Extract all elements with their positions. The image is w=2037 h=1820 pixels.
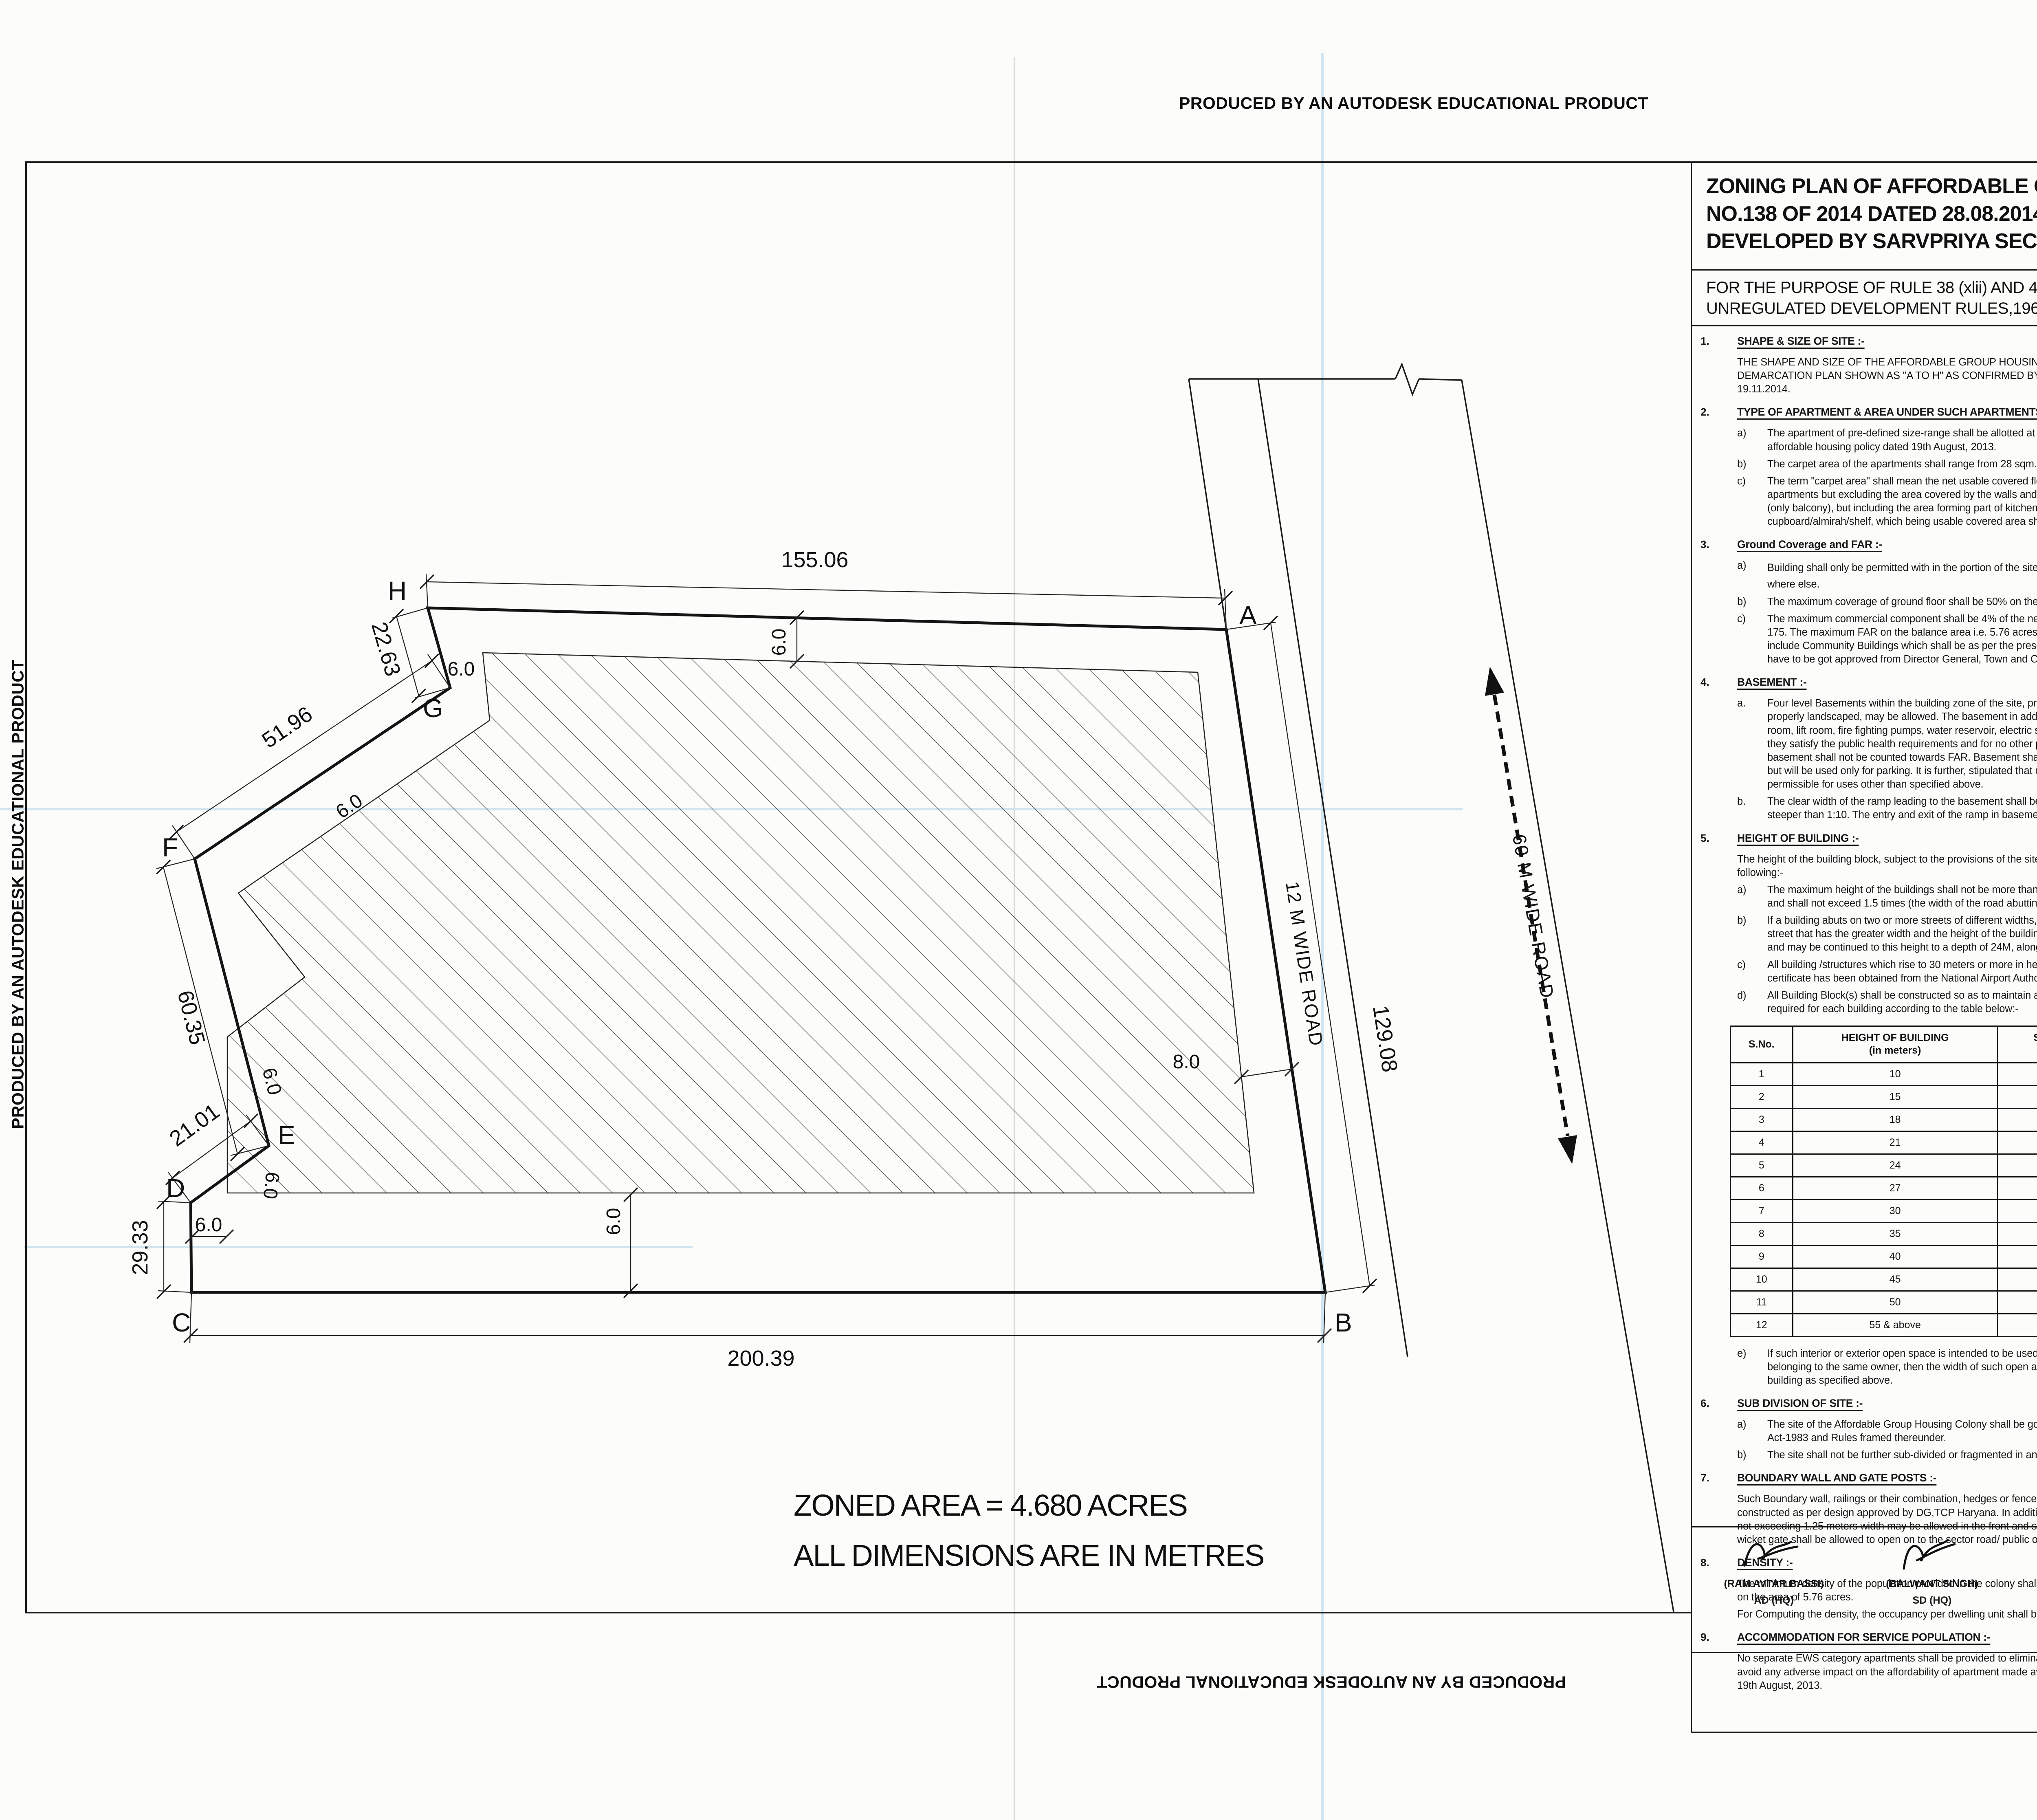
signature-block: (BALWANT SINGH)SD (HQ) bbox=[1853, 1531, 2011, 1649]
vertex-G: G bbox=[423, 693, 443, 723]
dim-label-bottom: 200.39 bbox=[727, 1346, 794, 1371]
table-cell: 10 bbox=[1793, 1063, 1997, 1085]
table-cell: 50 bbox=[1793, 1291, 1997, 1314]
table-row: 1255 & above16 bbox=[1731, 1314, 2037, 1336]
table-cell: 9 bbox=[1731, 1245, 1793, 1268]
section-number: 4. bbox=[1700, 676, 1709, 689]
table-header: SET BACK / OPEN SPACE TO BE LEFT AROUND … bbox=[1997, 1026, 2037, 1063]
clause: b.The clear width of the ramp leading to… bbox=[1737, 795, 2037, 822]
section: 6.SUB DIVISION OF SITE :-a)The site of t… bbox=[1700, 1397, 2037, 1462]
clause: a)The site of the Affordable Group Housi… bbox=[1737, 1418, 2037, 1445]
clause-label: d) bbox=[1737, 989, 1746, 1002]
clause-label: b. bbox=[1737, 795, 1746, 808]
clause-label: c) bbox=[1737, 958, 1746, 972]
section: 5.HEIGHT OF BUILDING :-The height of the… bbox=[1700, 832, 2037, 1387]
clause: c)The maximum commercial component shall… bbox=[1737, 612, 2037, 667]
dimensions-note: ALL DIMENSIONS ARE IN METRES bbox=[794, 1538, 1264, 1573]
clause: b)The carpet area of the apartments shal… bbox=[1737, 458, 2037, 471]
table-row: 115014 bbox=[1731, 1291, 2037, 1314]
clause: e)If such interior or exterior open spac… bbox=[1737, 1347, 2037, 1387]
section-number: 5. bbox=[1700, 832, 1709, 845]
road-lines bbox=[1189, 364, 1674, 1612]
table-cell: 11 bbox=[1997, 1222, 2037, 1245]
vertex-D: D bbox=[166, 1173, 185, 1203]
table-row: 73010 bbox=[1731, 1199, 2037, 1222]
clause-text: The height of the building block, subjec… bbox=[1737, 854, 2037, 878]
section: 4.BASEMENT :-a.Four level Basements with… bbox=[1700, 676, 2037, 822]
clause: a)Building shall only be permitted with … bbox=[1737, 559, 2037, 591]
table-cell: 7 bbox=[1997, 1131, 2037, 1154]
table-cell: 6 bbox=[1997, 1108, 2037, 1131]
section-heading: SHAPE & SIZE OF SITE :- bbox=[1737, 335, 2037, 348]
table-row: 94012 bbox=[1731, 1245, 2037, 1268]
dim-label-dc: 29.33 bbox=[128, 1220, 152, 1275]
table-cell: 8 bbox=[1731, 1222, 1793, 1245]
table-cell: 21 bbox=[1793, 1131, 1997, 1154]
vertex-F: F bbox=[162, 833, 178, 862]
clause-text: No separate EWS category apartments shal… bbox=[1737, 1653, 2037, 1691]
clause-label: a) bbox=[1737, 559, 1746, 572]
section-heading: BOUNDARY WALL AND GATE POSTS :- bbox=[1737, 1472, 2037, 1484]
signatory-role: SD (HQ) bbox=[1853, 1595, 2011, 1607]
clause: a.Four level Basements within the buildi… bbox=[1737, 697, 2037, 791]
table-cell: 10 bbox=[1997, 1199, 2037, 1222]
clause-label: e) bbox=[1737, 1347, 1746, 1360]
section-number: 3. bbox=[1700, 538, 1709, 551]
section-number: 6. bbox=[1700, 1397, 1709, 1410]
clause-text: The clear width of the ramp leading to t… bbox=[1767, 796, 2037, 821]
purpose-statement: FOR THE PURPOSE OF RULE 38 (xlii) AND 48… bbox=[1706, 277, 2037, 319]
clause-text: THE SHAPE AND SIZE OF THE AFFORDABLE GRO… bbox=[1737, 357, 2037, 395]
clause-label: c) bbox=[1737, 475, 1746, 488]
table-cell: 12 bbox=[1731, 1314, 1793, 1336]
clause: d)All Building Block(s) shall be constru… bbox=[1737, 989, 2037, 1016]
road-60m-label: 60 M WIDE ROAD bbox=[1509, 832, 1558, 1000]
table-cell: 45 bbox=[1793, 1268, 1997, 1291]
table-cell: 10 bbox=[1731, 1268, 1793, 1291]
table-cell: 35 bbox=[1793, 1222, 1997, 1245]
section-heading: SUB DIVISION OF SITE :- bbox=[1737, 1397, 2037, 1410]
section: 1.SHAPE & SIZE OF SITE :-THE SHAPE AND S… bbox=[1700, 335, 2037, 396]
section-heading: BASEMENT :- bbox=[1737, 676, 2037, 689]
clause: b)If a building abuts on two or more str… bbox=[1737, 914, 2037, 954]
clause-label: b) bbox=[1737, 458, 1746, 471]
vertex-H: H bbox=[388, 576, 407, 605]
clause-text: The site of the Affordable Group Housing… bbox=[1767, 1419, 2037, 1444]
spec-column-left: 1.SHAPE & SIZE OF SITE :-THE SHAPE AND S… bbox=[1700, 335, 2037, 1702]
signatory-role: ATP (HQ) bbox=[2011, 1595, 2037, 1607]
clause-label: c) bbox=[1737, 612, 1746, 626]
signature-row: (RAM AVTAR BASSI)AD (HQ)(BALWANT SINGH)S… bbox=[1695, 1531, 2037, 1649]
clause-label: b) bbox=[1737, 595, 1746, 609]
table-cell: 15 bbox=[1793, 1085, 1997, 1108]
vertex-A: A bbox=[1239, 601, 1257, 630]
clause-text: All building /structures which rise to 3… bbox=[1767, 959, 2037, 984]
section: 3.Ground Coverage and FAR :-a)Building s… bbox=[1700, 538, 2037, 666]
setback-6-g: 6.0 bbox=[448, 658, 475, 680]
setback-8-right: 8.0 bbox=[1173, 1051, 1200, 1073]
setback-6-top: 6.0 bbox=[768, 629, 790, 656]
signature-block: (SAVITA JINDAL)ATP (HQ) bbox=[2011, 1531, 2037, 1649]
setback-table: S.No.HEIGHT OF BUILDING (in meters)SET B… bbox=[1730, 1026, 2037, 1337]
setback-6-left: 6.0 bbox=[195, 1214, 222, 1236]
table-cell: 24 bbox=[1793, 1154, 1997, 1177]
clause: a)The apartment of pre-defined size-rang… bbox=[1737, 427, 2037, 453]
dim-label-fe: 60.35 bbox=[173, 988, 210, 1048]
section: 2.TYPE OF APARTMENT & AREA UNDER SUCH AP… bbox=[1700, 406, 2037, 528]
zoned-area-note: ZONED AREA = 4.680 ACRES bbox=[794, 1488, 1187, 1523]
dim-label-top: 155.06 bbox=[781, 548, 848, 572]
vertex-C: C bbox=[172, 1308, 191, 1337]
section-heading: TYPE OF APARTMENT & AREA UNDER SUCH APAR… bbox=[1737, 406, 2037, 418]
table-cell: 18 bbox=[1793, 1108, 1997, 1131]
table-cell: 12 bbox=[1997, 1245, 2037, 1268]
section-number: 7. bbox=[1700, 1472, 1709, 1484]
table-header: S.No. bbox=[1731, 1026, 1793, 1063]
table-row: 104513 bbox=[1731, 1268, 2037, 1291]
table-header: HEIGHT OF BUILDING (in meters) bbox=[1793, 1026, 1997, 1063]
clause-text: All Building Block(s) shall be construct… bbox=[1767, 990, 2037, 1015]
table-cell: 11 bbox=[1731, 1291, 1793, 1314]
table-cell: 4 bbox=[1731, 1131, 1793, 1154]
table-cell: 14 bbox=[1997, 1291, 2037, 1314]
clause: c)All building /structures which rise to… bbox=[1737, 958, 2037, 985]
section-number: 1. bbox=[1700, 335, 1709, 348]
signature-mark bbox=[1739, 1531, 1808, 1576]
table-cell: 1 bbox=[1731, 1063, 1793, 1085]
table-cell: 40 bbox=[1793, 1245, 1997, 1268]
clause-text: Building shall only be permitted with in… bbox=[1767, 562, 2037, 574]
signatory-role: AD (HQ) bbox=[1695, 1595, 1853, 1607]
table-cell: 30 bbox=[1793, 1199, 1997, 1222]
table-row: 5248 bbox=[1731, 1154, 2037, 1177]
table-cell: 13 bbox=[1997, 1268, 2037, 1291]
clause: c)The term "carpet area" shall mean the … bbox=[1737, 475, 2037, 529]
clause-label: a. bbox=[1737, 697, 1746, 710]
clause-label: b) bbox=[1737, 1448, 1746, 1462]
clause-text: The maximum height of the buildings shal… bbox=[1767, 884, 2037, 909]
clause-text: The maximum coverage of ground floor sha… bbox=[1767, 596, 2037, 607]
clause-text: If such interior or exterior open space … bbox=[1767, 1348, 2037, 1386]
clause-text: The carpet area of the apartments shall … bbox=[1767, 458, 2037, 470]
table-cell: 27 bbox=[1793, 1177, 1997, 1199]
clause: No separate EWS category apartments shal… bbox=[1737, 1652, 2037, 1692]
table-cell: 5 bbox=[1997, 1085, 2037, 1108]
road-12m-label: 12 M WIDE ROAD bbox=[1282, 880, 1327, 1048]
table-cell: 3 bbox=[1997, 1063, 2037, 1085]
table-cell: 55 & above bbox=[1793, 1314, 1997, 1336]
clause-text: The site shall not be further sub-divide… bbox=[1767, 1449, 2037, 1461]
table-cell: 3 bbox=[1731, 1108, 1793, 1131]
table-cell: 6 bbox=[1731, 1177, 1793, 1199]
table-cell: 8 bbox=[1997, 1154, 2037, 1177]
zoning-plan-sheet: PRODUCED BY AN AUTODESK EDUCATIONAL PROD… bbox=[0, 0, 2037, 1820]
table-row: 6279 bbox=[1731, 1177, 2037, 1199]
table-row: 2155 bbox=[1731, 1085, 2037, 1108]
table-cell: 7 bbox=[1731, 1199, 1793, 1222]
signature-block: (RAM AVTAR BASSI)AD (HQ) bbox=[1695, 1531, 1853, 1649]
signatory-name: (BALWANT SINGH) bbox=[1853, 1578, 2011, 1590]
table-row: 1103 bbox=[1731, 1063, 2037, 1085]
clause-text: The maximum commercial component shall b… bbox=[1767, 613, 2037, 665]
clause-label: b) bbox=[1737, 914, 1746, 927]
signatory-name: (SAVITA JINDAL) bbox=[2011, 1578, 2037, 1590]
vertex-B: B bbox=[1335, 1308, 1352, 1337]
clause: b)The maximum coverage of ground floor s… bbox=[1737, 595, 2037, 609]
section-number: 2. bbox=[1700, 406, 1709, 418]
vertex-E: E bbox=[278, 1120, 295, 1150]
table-row: 3186 bbox=[1731, 1108, 2037, 1131]
clause-label: a) bbox=[1737, 427, 1746, 440]
drawing-title: ZONING PLAN OF AFFORDABLE GROUP HOUSING … bbox=[1706, 173, 2037, 255]
dim-label-gf: 51.96 bbox=[257, 702, 317, 753]
purpose-block: FOR THE PURPOSE OF RULE 38 (xlii) AND 48… bbox=[1691, 270, 2037, 325]
table-row: 4217 bbox=[1731, 1131, 2037, 1154]
clause-text: The term "carpet area" shall mean the ne… bbox=[1767, 475, 2037, 527]
setback-6-ed: 6.0 bbox=[259, 1171, 284, 1200]
clause-label: a) bbox=[1737, 1418, 1746, 1431]
table-row: 83511 bbox=[1731, 1222, 2037, 1245]
clause-text: Four level Basements within the building… bbox=[1767, 698, 2037, 790]
clause-text: If a building abuts on two or more stree… bbox=[1767, 915, 2037, 953]
clause-text: The apartment of pre-defined size-range … bbox=[1767, 427, 2037, 452]
setback-6-bottom: 6.0 bbox=[603, 1208, 625, 1235]
table-cell: 16 bbox=[1997, 1314, 2037, 1336]
clause: b)The site shall not be further sub-divi… bbox=[1737, 1448, 2037, 1462]
dim-label-ba: 129.08 bbox=[1368, 1004, 1402, 1074]
title-block: ZONING PLAN OF AFFORDABLE GROUP HOUSING … bbox=[1691, 162, 2037, 269]
table-cell: 5 bbox=[1731, 1154, 1793, 1177]
section-heading: HEIGHT OF BUILDING :- bbox=[1737, 832, 2037, 845]
signatory-name: (RAM AVTAR BASSI) bbox=[1695, 1578, 1853, 1590]
clause: a)The maximum height of the buildings sh… bbox=[1737, 883, 2037, 910]
clause: The height of the building block, subjec… bbox=[1737, 853, 2037, 880]
clause-label: a) bbox=[1737, 883, 1746, 897]
dim-label-ed: 21.01 bbox=[165, 1099, 224, 1151]
table-cell: 2 bbox=[1731, 1085, 1793, 1108]
section-heading: Ground Coverage and FAR :- bbox=[1737, 538, 2037, 551]
signature-mark bbox=[1895, 1527, 1969, 1579]
table-cell: 9 bbox=[1997, 1177, 2037, 1199]
clause: THE SHAPE AND SIZE OF THE AFFORDABLE GRO… bbox=[1737, 356, 2037, 396]
